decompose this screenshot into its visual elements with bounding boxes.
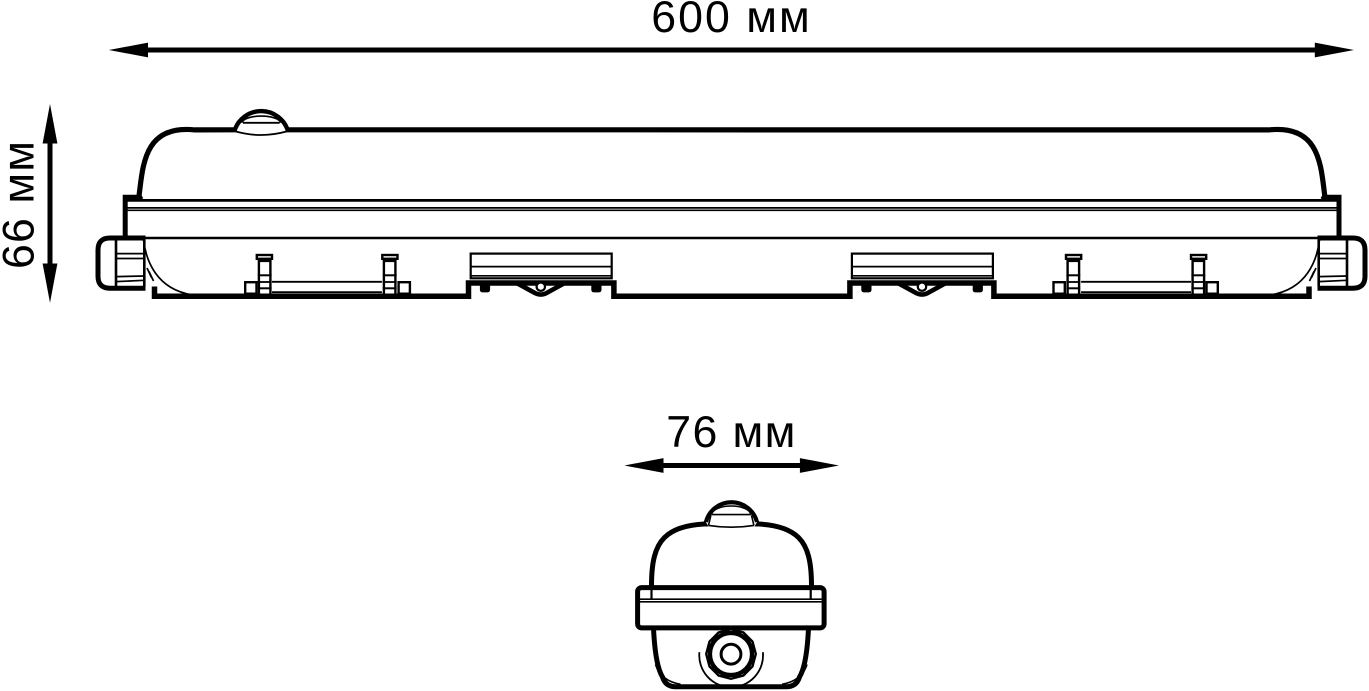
- svg-text:600 мм: 600 мм: [651, 0, 811, 42]
- svg-text:76 мм: 76 мм: [666, 408, 797, 457]
- svg-text:66 мм: 66 мм: [0, 140, 43, 269]
